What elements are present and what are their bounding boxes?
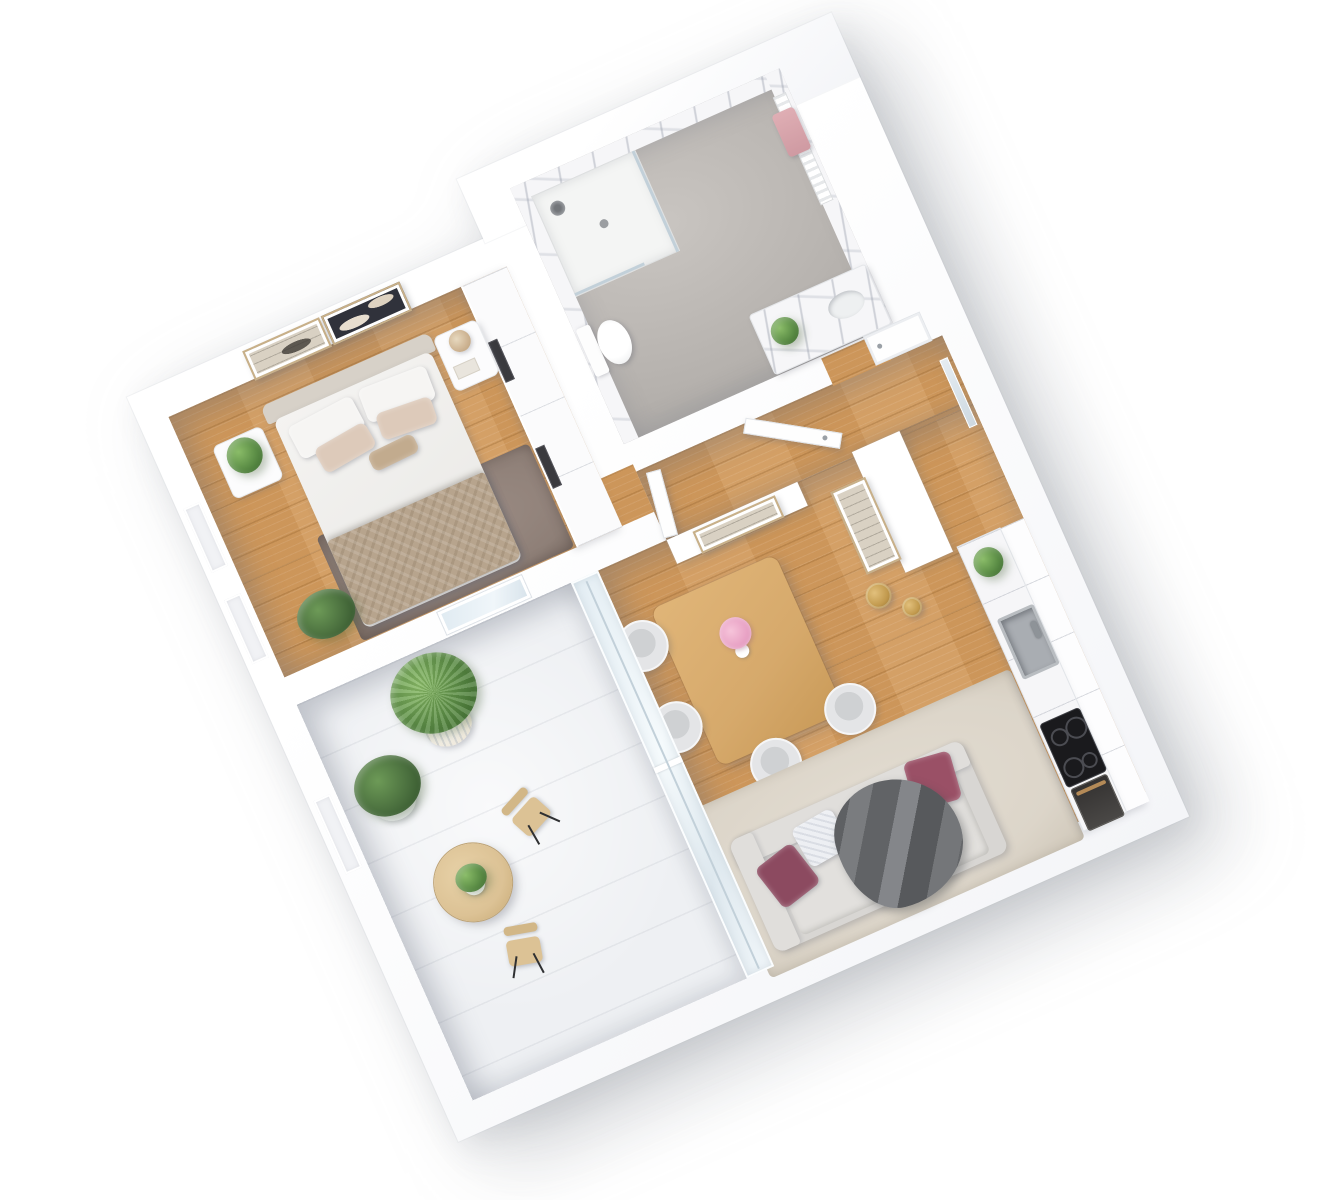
- balcony-chair-lower: [503, 922, 544, 971]
- entrance-door-handle: [822, 435, 828, 441]
- floorplan-stage: [0, 0, 1333, 1200]
- apartment-plan: [92, 0, 1217, 1200]
